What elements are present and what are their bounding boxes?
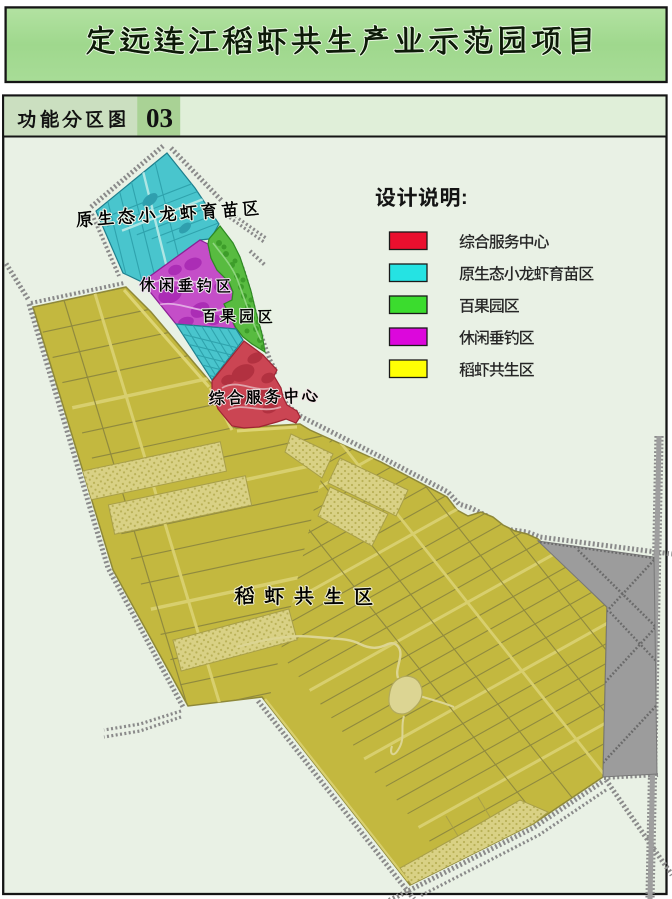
svg-text::: :	[461, 187, 468, 209]
svg-text:03: 03	[146, 103, 173, 133]
